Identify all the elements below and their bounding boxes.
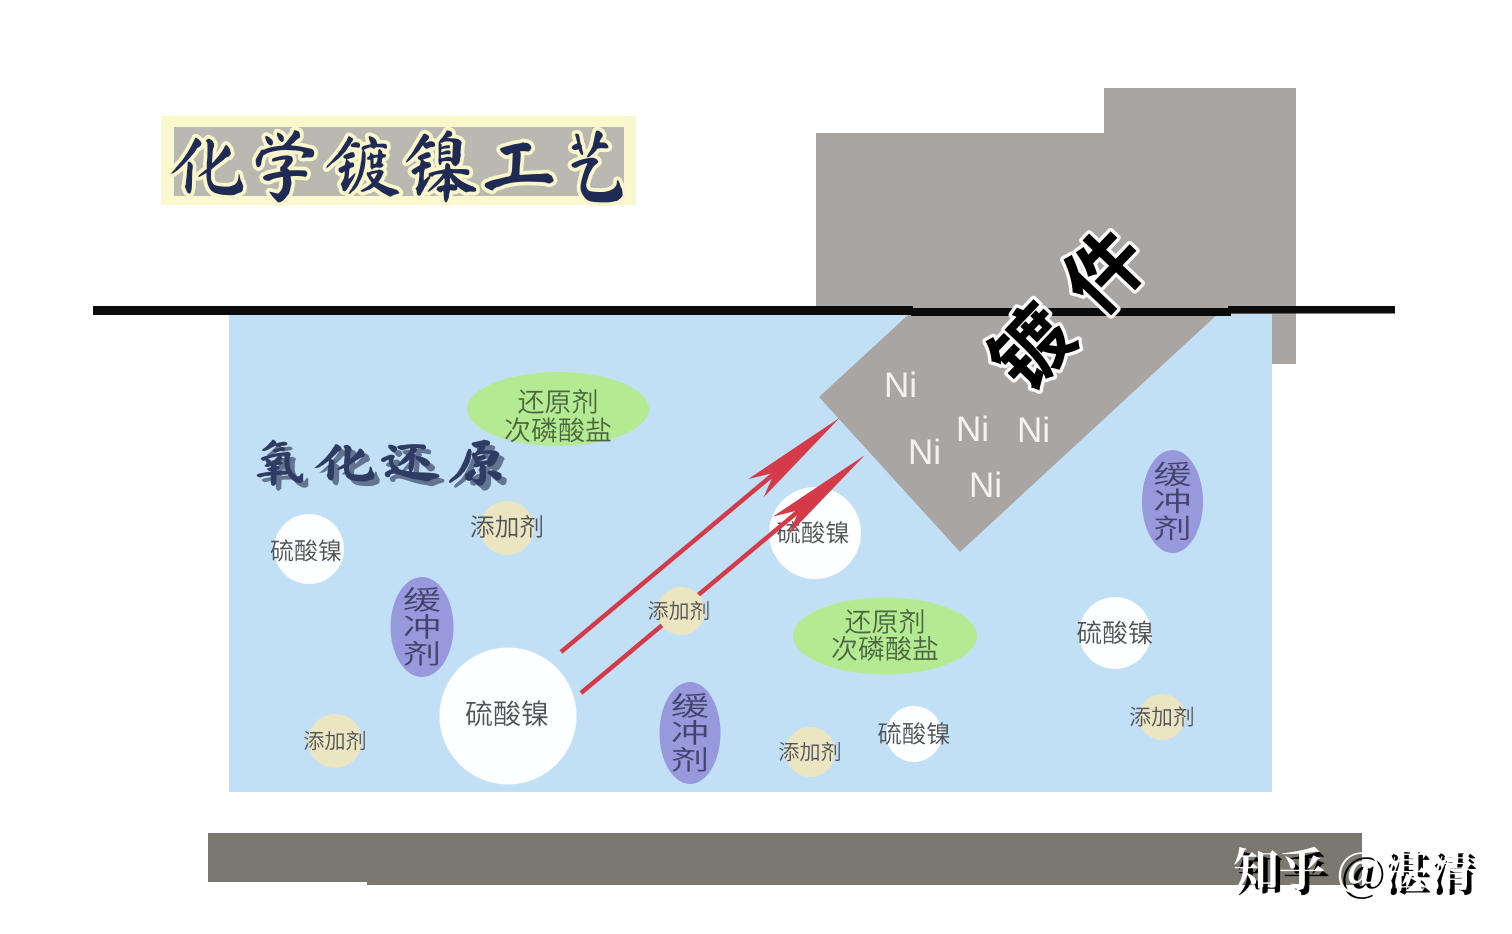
- svg-text:Ni: Ni: [956, 410, 989, 449]
- svg-text:Ni: Ni: [884, 366, 917, 405]
- svg-text:Ni: Ni: [1017, 411, 1050, 450]
- svg-text:Ni: Ni: [969, 466, 1002, 505]
- svg-text:Ni: Ni: [908, 433, 941, 472]
